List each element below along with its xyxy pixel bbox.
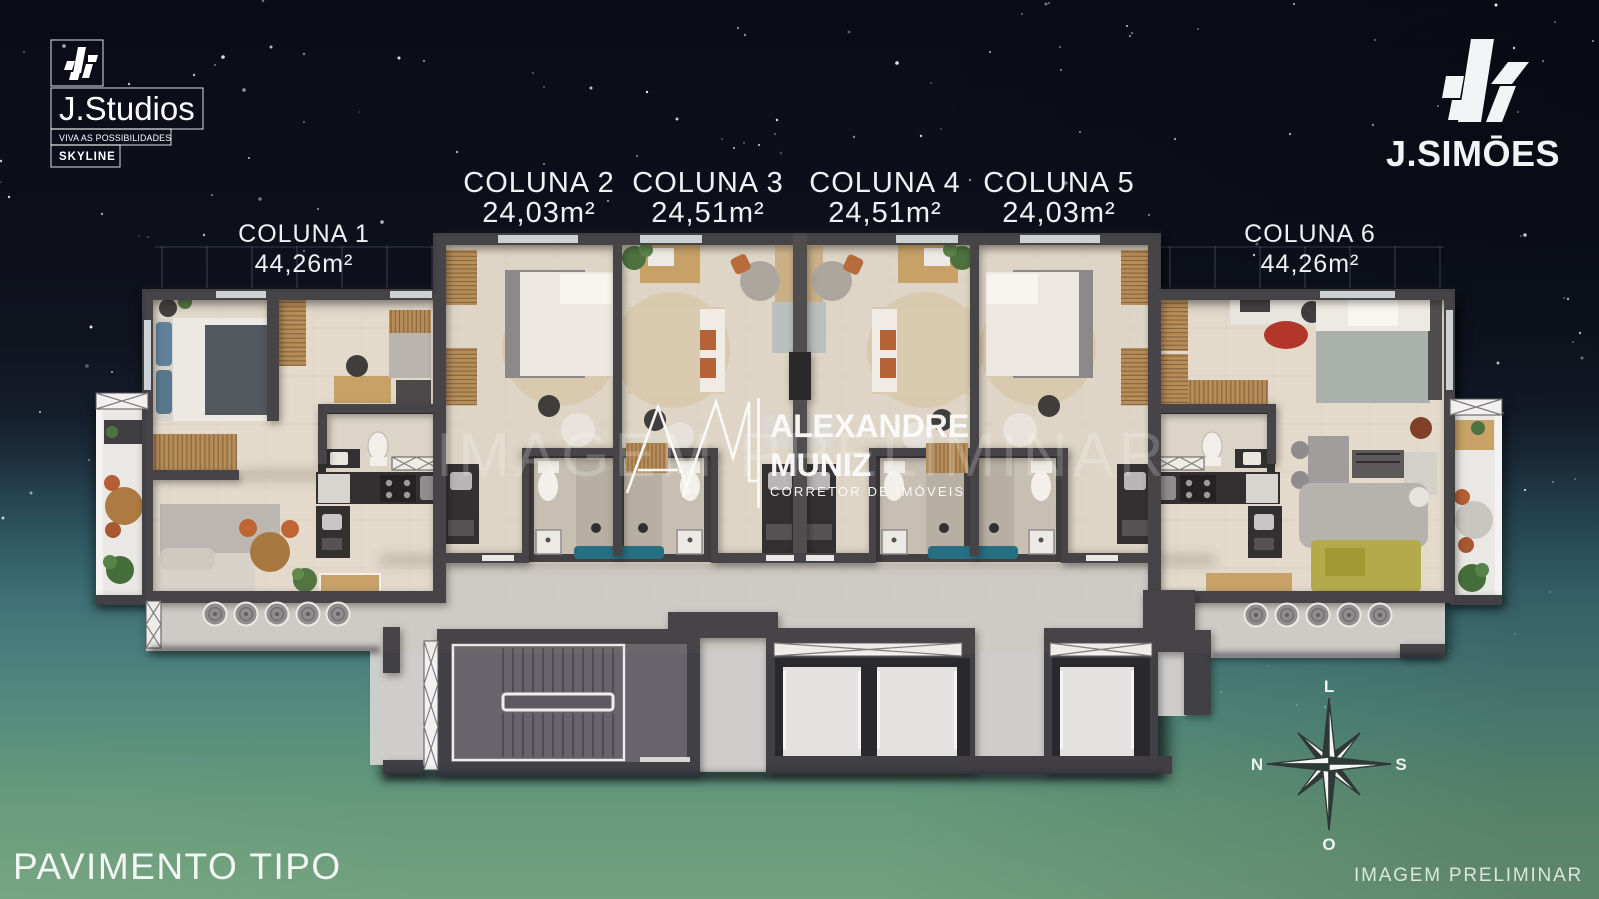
svg-text:ALEXANDRE: ALEXANDRE (770, 408, 969, 444)
svg-text:L: L (1324, 677, 1334, 696)
svg-text:O: O (1322, 835, 1335, 854)
svg-text:SKYLINE: SKYLINE (59, 151, 116, 163)
svg-text:J.SIMŌES: J.SIMŌES (1386, 133, 1560, 174)
svg-text:N: N (1251, 755, 1263, 774)
svg-text:VIVA AS POSSIBILIDADES: VIVA AS POSSIBILIDADES (59, 133, 171, 143)
svg-text:S: S (1395, 755, 1406, 774)
svg-text:J.Studios: J.Studios (59, 90, 195, 127)
svg-text:CORRETOR DE IMÓVEIS: CORRETOR DE IMÓVEIS (770, 484, 965, 499)
svg-text:MUNIZ: MUNIZ (770, 447, 871, 483)
